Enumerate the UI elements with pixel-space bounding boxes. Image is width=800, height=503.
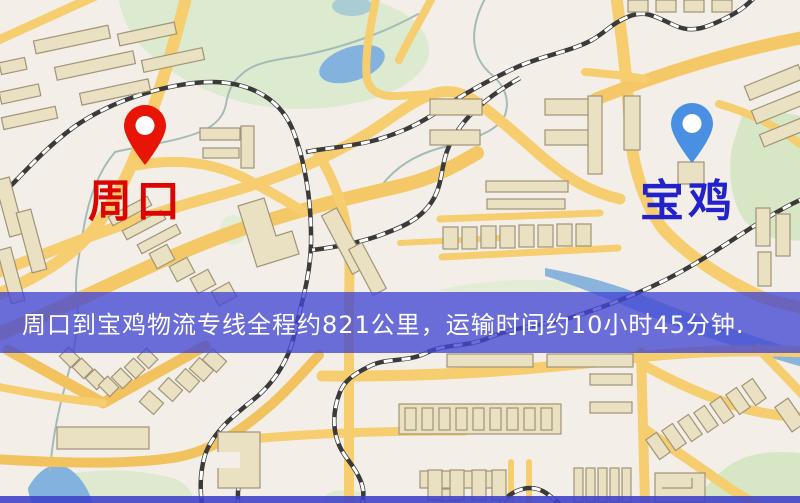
- origin-pin-hole: [136, 116, 155, 135]
- destination-pin-hole: [683, 114, 702, 133]
- map-canvas[interactable]: [0, 0, 800, 503]
- map-view[interactable]: 周口 宝鸡 周口到宝鸡物流专线全程约821公里，运输时间约10小时45分钟.: [0, 0, 800, 503]
- origin-pin-icon[interactable]: [121, 104, 169, 168]
- route-info-text: 周口到宝鸡物流专线全程约821公里，运输时间约10小时45分钟.: [22, 305, 745, 340]
- destination-city-label: 宝鸡: [640, 180, 736, 224]
- destination-pin-icon[interactable]: [668, 102, 716, 166]
- bottom-banner-strip: [0, 496, 800, 503]
- route-info-banner: 周口到宝鸡物流专线全程约821公里，运输时间约10小时45分钟.: [0, 292, 800, 353]
- origin-city-label: 周口: [88, 180, 184, 224]
